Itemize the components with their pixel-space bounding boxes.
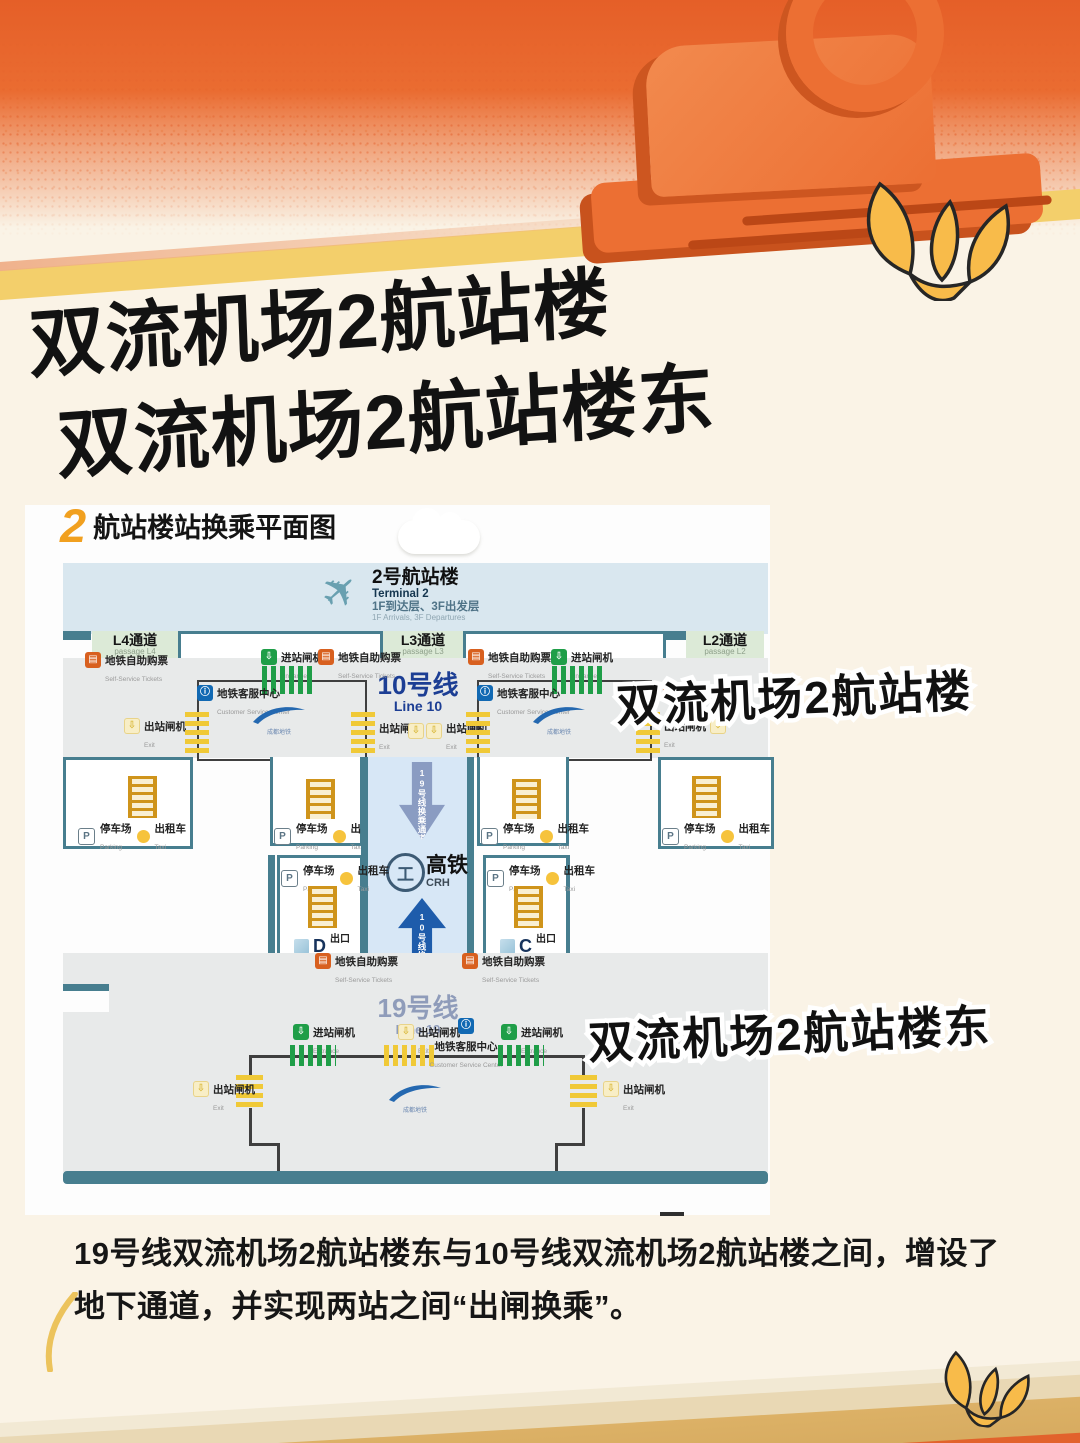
- tickets-cn: 地铁自助购票: [105, 655, 168, 667]
- exit-gates: [384, 1045, 436, 1066]
- chengdu-metro-logo: 成都地铁: [386, 1082, 444, 1114]
- crh-en: CRH: [426, 876, 468, 890]
- exit-gates: [185, 712, 209, 754]
- exitgate-label: ⇩ 出站闸机 Exit: [124, 718, 186, 752]
- exit-gates: [351, 712, 375, 754]
- parking-cn: 停车场: [303, 865, 335, 877]
- exitgate-icon: ⇩: [426, 723, 442, 739]
- service-center-icon: ⓘ: [458, 1018, 474, 1034]
- map-header: 2 航站楼站换乘平面图: [60, 504, 336, 549]
- escalator-icon: [306, 779, 335, 819]
- fare-boundary-line: [582, 1108, 585, 1145]
- exit-gates: [466, 712, 490, 754]
- terminal-info: 2号航站楼 Terminal 2 1F到达层、3F出发层 1F Arrivals…: [372, 567, 479, 623]
- corridor-down-text: 19号线换乘通道: [416, 768, 428, 843]
- service-cn: 地铁客服中心: [217, 688, 280, 700]
- taxi-cn: 出租车: [155, 823, 187, 835]
- taxi-en: Taxi: [358, 886, 370, 893]
- entrance-icon: ⇩: [551, 649, 567, 665]
- entrance-cn: 进站闸机: [521, 1027, 563, 1039]
- parking-cn: 停车场: [509, 865, 541, 877]
- metro-swoosh-icon: [530, 704, 588, 726]
- parking-en: Parking: [100, 844, 122, 851]
- exitgate-icon: ⇩: [408, 723, 424, 739]
- passage-l3-cn: L3通道: [401, 633, 445, 647]
- fare-boundary-line: [249, 1143, 279, 1146]
- exitgate-cn: 出站闸机: [213, 1084, 255, 1096]
- escalator-icon: [308, 886, 337, 928]
- tickets-label: ▤ 地铁自助购票 Self-Service Tickets: [462, 953, 545, 987]
- escalator-icon: [692, 776, 721, 818]
- service-cn: 地铁客服中心: [435, 1041, 498, 1053]
- taxi-icon: [340, 872, 353, 885]
- tickets-en: Self-Service Tickets: [105, 676, 162, 683]
- taxi-en: Taxi: [155, 844, 167, 851]
- metro-swoosh-icon: [386, 1082, 444, 1104]
- taxi-en: Taxi: [558, 844, 570, 851]
- exitgate-icon: ⇩: [193, 1081, 209, 1097]
- bottom-wall: [63, 1171, 768, 1184]
- parking-taxi-row: 停车场 Parking 出租车 Taxi: [662, 820, 770, 854]
- tickets-en: Self-Service Tickets: [482, 977, 539, 984]
- map-header-title: 航站楼站换乘平面图: [93, 506, 336, 549]
- service-center-label: ⓘ 地铁客服中心 Customer Service Center: [433, 1018, 499, 1072]
- exitgate-en: Exit: [664, 742, 675, 749]
- terminal-name-en: Terminal 2: [372, 588, 479, 601]
- exitgate-label: ⇩ 出站闸机 Exit: [193, 1081, 255, 1115]
- parking-cn: 停车场: [684, 823, 716, 835]
- taxi-en: Taxi: [564, 886, 576, 893]
- chengdu-metro-logo: 成都地铁: [250, 704, 308, 736]
- parking-icon: [281, 870, 298, 887]
- taxi-icon: [546, 872, 559, 885]
- parking-en: Parking: [296, 844, 318, 851]
- exit-square-icon: [294, 939, 309, 954]
- tickets-en: Self-Service Tickets: [488, 673, 545, 680]
- taxi-cn: 出租车: [558, 823, 590, 835]
- parking-icon: [481, 828, 498, 845]
- taxi-icon: [721, 830, 734, 843]
- tickets-icon: ▤: [468, 649, 484, 665]
- tickets-icon: ▤: [462, 953, 478, 969]
- escalator-icon: [512, 779, 541, 819]
- entrance-icon: ⇩: [293, 1024, 309, 1040]
- exit-gates: [570, 1075, 597, 1111]
- taxi-icon: [540, 830, 553, 843]
- exitgate-label: ⇩ 出站闸机 Exit: [603, 1081, 665, 1115]
- crh-cn: 高铁: [426, 855, 468, 876]
- metro-swoosh-icon: [250, 704, 308, 726]
- wall-notch: [63, 991, 109, 1012]
- note-text: 19号线双流机场2航站楼东与10号线双流机场2航站楼之间，增设了 地下通道，并实…: [74, 1228, 1044, 1333]
- tickets-en: Self-Service Tickets: [335, 977, 392, 984]
- exitgate-cn: 出站闸机: [144, 721, 186, 733]
- service-center-icon: ⓘ: [197, 685, 213, 701]
- passage-l4-cn: L4通道: [113, 633, 157, 647]
- note-line2: 地下通道，并实现两站之间“出闸换乘”。: [74, 1281, 1044, 1334]
- parking-icon: [662, 828, 679, 845]
- tickets-en: Self-Service Tickets: [338, 673, 395, 680]
- chengdu-metro-logo: 成都地铁: [530, 704, 588, 736]
- wall-stub: [63, 631, 91, 640]
- entrance-icon: ⇩: [261, 649, 277, 665]
- entrance-icon: ⇩: [501, 1024, 517, 1040]
- passage-l2-en: passage L2: [704, 648, 745, 656]
- crh-rail-icon: [386, 853, 425, 892]
- wall-stub: [63, 984, 109, 991]
- exitgate-icon: ⇩: [398, 1024, 414, 1040]
- exitgate-en: Exit: [379, 744, 390, 751]
- taxi-icon: [333, 830, 346, 843]
- entrance-cn: 进站闸机: [571, 652, 613, 664]
- tickets-cn: 地铁自助购票: [488, 652, 551, 664]
- entrance-gates: [498, 1045, 544, 1066]
- exitgate-icon: ⇩: [124, 718, 140, 734]
- parking-icon: [487, 870, 504, 887]
- tickets-label: ▤ 地铁自助购票 Self-Service Tickets: [468, 649, 551, 683]
- tickets-label: ▤ 地铁自助购票 Self-Service Tickets: [315, 953, 398, 987]
- escalator-icon: [514, 886, 543, 928]
- crh-label: 高铁 CRH: [426, 855, 468, 890]
- leaf-hand-icon: [933, 1346, 1038, 1433]
- exitgate-icon: ⇩: [603, 1081, 619, 1097]
- entrance-gates: [290, 1045, 336, 1066]
- entrance-cn: 进站闸机: [313, 1027, 355, 1039]
- parking-cn: 停车场: [503, 823, 535, 835]
- metro-logo-text: 成都地铁: [386, 1108, 444, 1114]
- taxi-cn: 出租车: [739, 823, 771, 835]
- parking-cn: 停车场: [100, 823, 132, 835]
- tickets-icon: ▤: [318, 649, 334, 665]
- exitgate-en: Exit: [213, 1105, 224, 1112]
- parking-cn: 停车场: [296, 823, 328, 835]
- corridor-wall: [467, 757, 474, 953]
- taxi-icon: [137, 830, 150, 843]
- wall-stub: [663, 631, 686, 640]
- fare-boundary-line: [555, 1143, 585, 1146]
- passage-l2-cn: L2通道: [703, 633, 747, 647]
- parking-icon: [78, 828, 95, 845]
- tickets-icon: ▤: [85, 652, 101, 668]
- note-line1: 19号线双流机场2航站楼东与10号线双流机场2航站楼之间，增设了: [74, 1228, 1044, 1281]
- line10-en: Line 10: [376, 699, 460, 714]
- service-en: Customer Service Center: [430, 1062, 503, 1069]
- exitgate-en: Exit: [446, 744, 457, 751]
- metro-logo-text: 成都地铁: [530, 730, 588, 736]
- terminal-name-cn: 2号航站楼: [372, 567, 479, 588]
- taxi-cn: 出租车: [358, 865, 390, 877]
- metro-logo-text: 成都地铁: [250, 730, 308, 736]
- taxi-cn: 出租车: [564, 865, 596, 877]
- parking-taxi-row: 停车场 Parking 出租车 Taxi: [78, 820, 186, 854]
- passage-l3-en: passage L3: [402, 648, 443, 656]
- tickets-cn: 地铁自助购票: [335, 956, 398, 968]
- parking-en: Parking: [684, 844, 706, 851]
- parking-taxi-row: 停车场 Parking 出租车 Taxi: [481, 820, 589, 854]
- poster-page: 双流机场2航站楼 双流机场2航站楼东 2 航站楼站换乘平面图 ✈ 2号航站楼 T…: [0, 0, 1080, 1443]
- tickets-label: ▤ 地铁自助购票 Self-Service Tickets: [85, 652, 168, 686]
- exit-cn: 出口: [536, 934, 556, 945]
- cloud-icon: [398, 520, 480, 554]
- tickets-cn: 地铁自助购票: [338, 652, 401, 664]
- passage-l2: L2通道 passage L2: [686, 631, 764, 658]
- terminal-floors-en: 1F Arrivals, 3F Departures: [372, 614, 479, 623]
- squiggle-icon: [30, 1292, 90, 1372]
- map-header-number: 2: [60, 504, 86, 549]
- parking-icon: [274, 828, 291, 845]
- exit-square-icon: [500, 939, 515, 954]
- exitgate-en: Exit: [144, 742, 155, 749]
- tickets-label: ▤ 地铁自助购票 Self-Service Tickets: [318, 649, 401, 683]
- fare-boundary-line: [277, 1143, 280, 1172]
- leaf-hand-icon: [858, 176, 1018, 301]
- exit-cn: 出口: [330, 934, 350, 945]
- corridor-wall: [268, 855, 275, 953]
- exitgate-cn: 出站闸机: [623, 1084, 665, 1096]
- escalator-icon: [128, 776, 157, 818]
- scale-dash: [660, 1212, 684, 1216]
- exitgate-en: Exit: [623, 1105, 634, 1112]
- entrance-cn: 进站闸机: [281, 652, 323, 664]
- service-cn: 地铁客服中心: [497, 688, 560, 700]
- taxi-en: Taxi: [739, 844, 751, 851]
- parking-en: Parking: [503, 844, 525, 851]
- tickets-icon: ▤: [315, 953, 331, 969]
- service-center-icon: ⓘ: [477, 685, 493, 701]
- tickets-cn: 地铁自助购票: [482, 956, 545, 968]
- fare-boundary-line: [555, 1143, 558, 1172]
